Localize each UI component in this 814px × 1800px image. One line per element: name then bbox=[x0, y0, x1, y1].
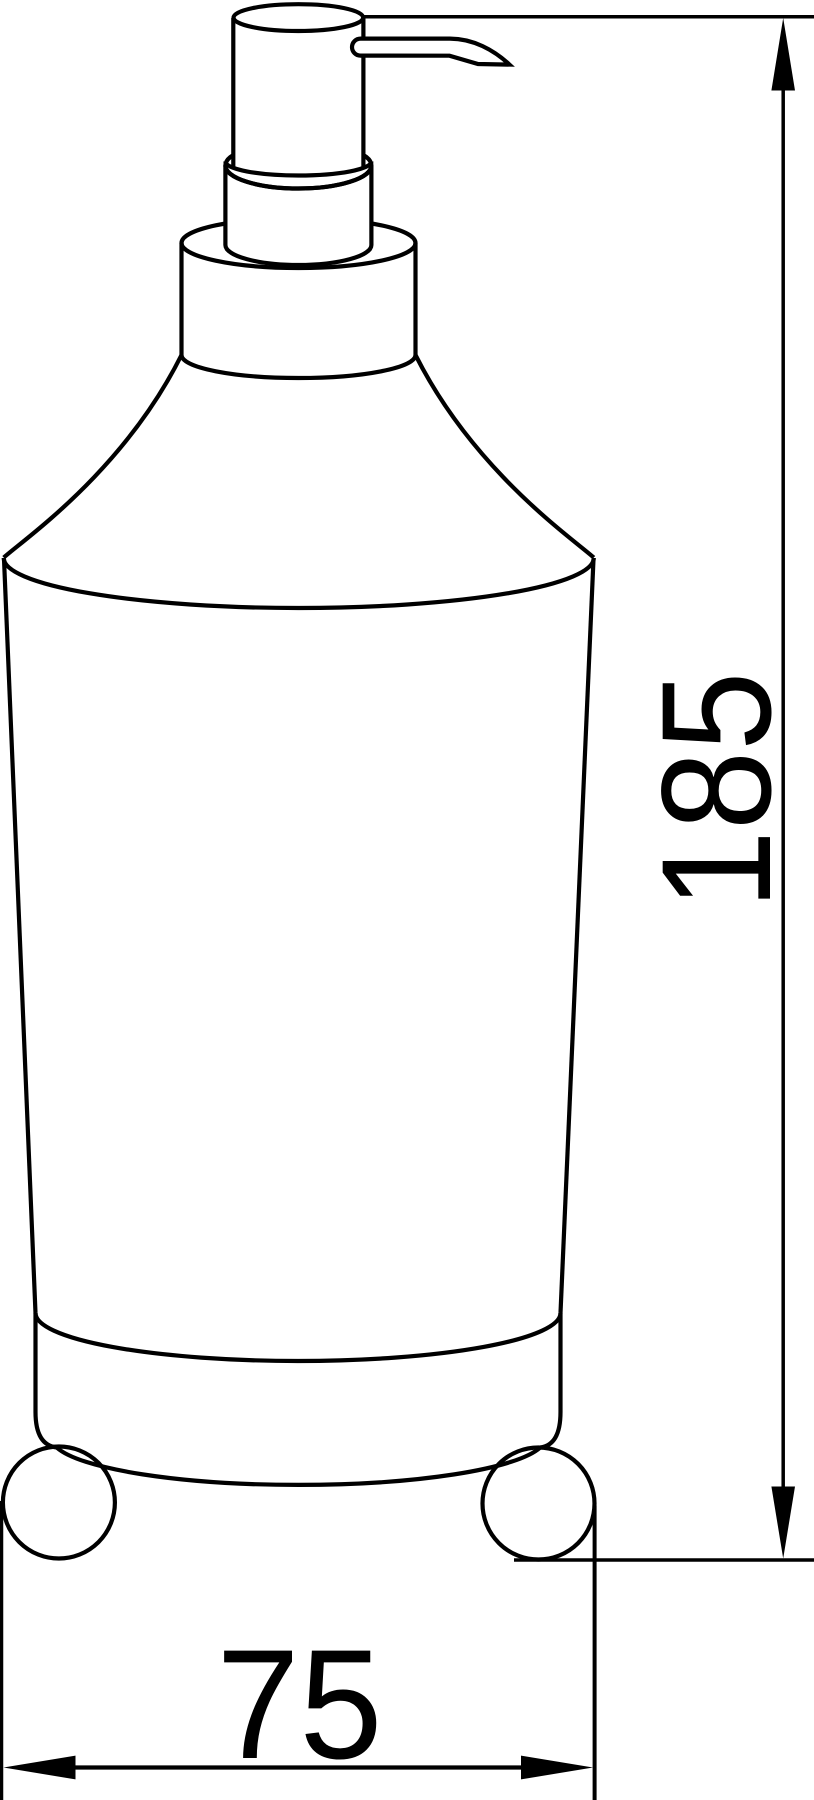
svg-text:185: 185 bbox=[630, 672, 804, 910]
svg-text:75: 75 bbox=[217, 1618, 383, 1792]
